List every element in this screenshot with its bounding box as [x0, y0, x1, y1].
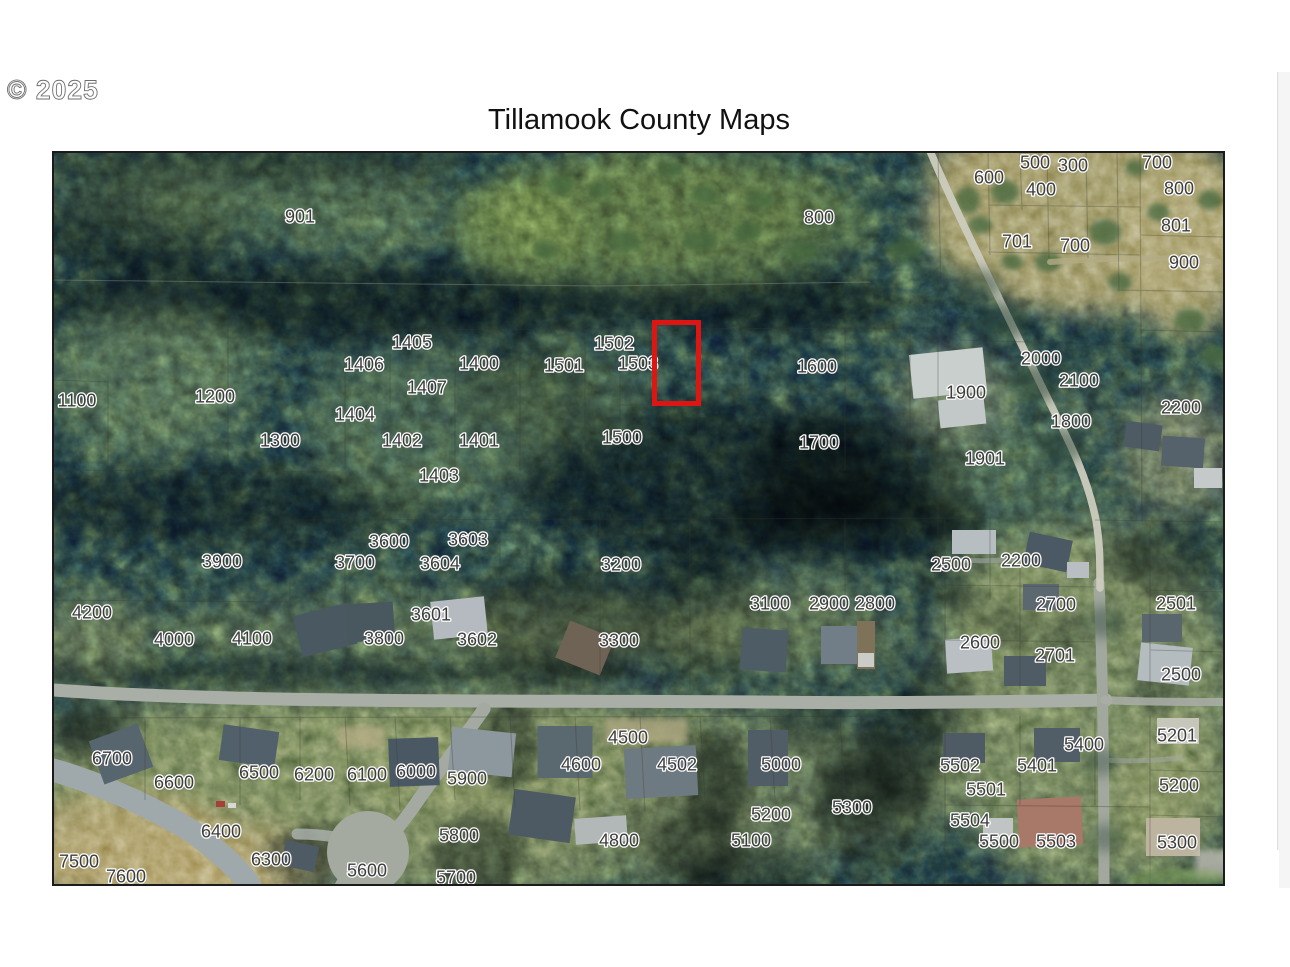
- svg-text:3601: 3601: [411, 605, 451, 625]
- svg-text:4500: 4500: [608, 728, 648, 748]
- svg-text:1400: 1400: [459, 354, 499, 374]
- svg-text:3900: 3900: [202, 552, 242, 572]
- svg-text:5504: 5504: [950, 811, 990, 831]
- svg-text:4800: 4800: [599, 831, 639, 851]
- svg-text:700: 700: [1142, 153, 1172, 173]
- svg-text:2100: 2100: [1059, 371, 1099, 391]
- svg-text:3603: 3603: [448, 530, 488, 550]
- svg-text:1405: 1405: [392, 333, 432, 353]
- svg-text:3100: 3100: [750, 594, 790, 614]
- svg-text:© 2025: © 2025: [7, 75, 99, 105]
- svg-text:2200: 2200: [1161, 398, 1201, 418]
- svg-text:5400: 5400: [1064, 735, 1104, 755]
- svg-text:1407: 1407: [407, 378, 447, 398]
- svg-text:1502: 1502: [594, 334, 634, 354]
- svg-text:1406: 1406: [344, 355, 384, 375]
- svg-text:2200: 2200: [1001, 551, 1041, 571]
- svg-text:1501: 1501: [544, 356, 584, 376]
- svg-text:2500: 2500: [1161, 665, 1201, 685]
- svg-text:4502: 4502: [657, 755, 697, 775]
- svg-text:300: 300: [1058, 156, 1088, 176]
- svg-text:2701: 2701: [1035, 646, 1075, 666]
- svg-text:6000: 6000: [396, 762, 436, 782]
- svg-text:5000: 5000: [761, 755, 801, 775]
- svg-text:5502: 5502: [940, 756, 980, 776]
- svg-text:6500: 6500: [239, 763, 279, 783]
- svg-text:5300: 5300: [1157, 833, 1197, 853]
- svg-text:3604: 3604: [420, 554, 460, 574]
- svg-text:6100: 6100: [347, 765, 387, 785]
- svg-text:1200: 1200: [195, 387, 235, 407]
- svg-text:500: 500: [1020, 153, 1050, 173]
- svg-text:701: 701: [1002, 232, 1032, 252]
- svg-text:2000: 2000: [1021, 349, 1061, 369]
- svg-text:Tillamook County Maps: Tillamook County Maps: [488, 104, 790, 136]
- svg-text:1100: 1100: [58, 391, 97, 411]
- svg-text:600: 600: [974, 168, 1004, 188]
- svg-text:2700: 2700: [1036, 595, 1076, 615]
- svg-text:2500: 2500: [931, 555, 971, 575]
- svg-text:5201: 5201: [1157, 726, 1197, 746]
- svg-text:1403: 1403: [419, 466, 459, 486]
- svg-text:5200: 5200: [751, 805, 791, 825]
- svg-text:7600: 7600: [106, 867, 146, 887]
- svg-text:5800: 5800: [439, 826, 479, 846]
- svg-text:1901: 1901: [965, 449, 1005, 469]
- svg-text:2900: 2900: [809, 594, 849, 614]
- svg-text:6700: 6700: [92, 749, 132, 769]
- svg-text:3300: 3300: [599, 631, 639, 651]
- svg-text:901: 901: [285, 207, 315, 227]
- svg-text:2800: 2800: [855, 594, 895, 614]
- svg-text:4200: 4200: [72, 603, 112, 623]
- svg-text:5100: 5100: [731, 831, 771, 851]
- svg-text:400: 400: [1026, 180, 1056, 200]
- svg-text:5501: 5501: [966, 780, 1006, 800]
- svg-text:900: 900: [1169, 253, 1199, 273]
- svg-text:5500: 5500: [979, 832, 1019, 852]
- svg-text:2501: 2501: [1156, 594, 1196, 614]
- svg-text:1404: 1404: [335, 405, 375, 425]
- svg-text:5300: 5300: [832, 798, 872, 818]
- svg-text:4100: 4100: [232, 629, 272, 649]
- svg-text:1600: 1600: [797, 357, 837, 377]
- svg-text:3700: 3700: [335, 553, 375, 573]
- svg-text:5401: 5401: [1017, 756, 1057, 776]
- svg-text:1300: 1300: [260, 431, 300, 451]
- svg-text:1500: 1500: [602, 428, 642, 448]
- svg-text:2600: 2600: [960, 633, 1000, 653]
- svg-text:6400: 6400: [201, 822, 241, 842]
- svg-text:3200: 3200: [601, 555, 641, 575]
- svg-text:4600: 4600: [561, 755, 601, 775]
- svg-text:5600: 5600: [347, 861, 387, 881]
- svg-text:5900: 5900: [447, 769, 487, 789]
- svg-text:800: 800: [804, 208, 834, 228]
- svg-text:1800: 1800: [1051, 412, 1091, 432]
- svg-text:1402: 1402: [382, 431, 422, 451]
- svg-text:1700: 1700: [799, 433, 839, 453]
- svg-text:801: 801: [1161, 216, 1191, 236]
- svg-text:800: 800: [1164, 179, 1194, 199]
- svg-text:6300: 6300: [251, 850, 291, 870]
- svg-text:1900: 1900: [946, 383, 986, 403]
- svg-text:6200: 6200: [294, 765, 334, 785]
- svg-text:6600: 6600: [154, 773, 194, 793]
- svg-text:3600: 3600: [369, 532, 409, 552]
- svg-text:3800: 3800: [364, 629, 404, 649]
- svg-text:1401: 1401: [459, 431, 499, 451]
- svg-text:5503: 5503: [1036, 832, 1076, 852]
- svg-text:4000: 4000: [154, 630, 194, 650]
- svg-text:700: 700: [1060, 236, 1090, 256]
- svg-text:3602: 3602: [457, 630, 497, 650]
- svg-text:7500: 7500: [59, 852, 99, 872]
- svg-text:5200: 5200: [1159, 776, 1199, 796]
